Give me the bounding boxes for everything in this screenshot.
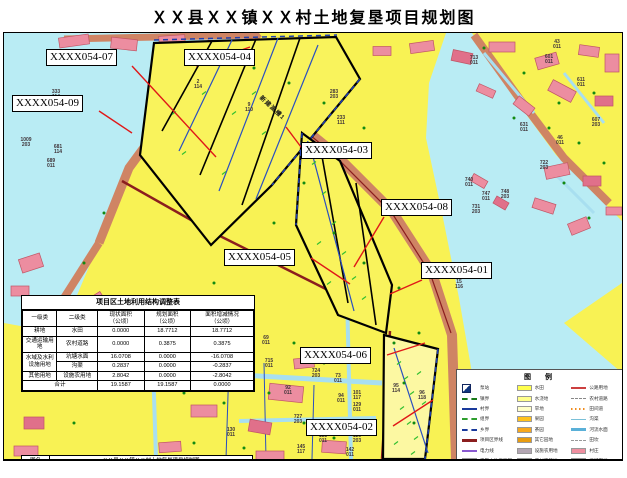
parcel-number-label: 130011 [217, 428, 245, 438]
legend-item: 公路用地 [568, 383, 623, 393]
building [489, 42, 515, 52]
total-label: 合计 [23, 381, 98, 391]
parcel-number-label: 129011 [343, 403, 371, 413]
tree-icon [103, 212, 106, 215]
land-class-1: 交通运输用地 [23, 336, 57, 352]
legend-swatch-dashline-icon [462, 429, 477, 431]
tree-icon [183, 392, 186, 395]
area-change: 18.7712 [191, 327, 254, 337]
legend-item-label: 采矿用地 [589, 458, 607, 461]
parcel-number-label: 740011 [455, 178, 483, 188]
legend-column: 泵站镇界村界组界乡界项目区界线电力线平整土地工程区新增耕地项目区范围其他 [459, 383, 514, 461]
legend-item-label: 镇界 [480, 396, 489, 402]
legend: 图 例 泵站镇界村界组界乡界项目区界线电力线平整土地工程区新增耕地项目区范围其他… [456, 369, 623, 461]
legend-swatch-rect-icon [517, 458, 532, 461]
legend-item-label: 农村宅基地 [535, 458, 558, 461]
legend-swatch-line-icon [571, 419, 586, 420]
legend-item-label: 设施农用地 [535, 448, 558, 454]
parcel-number-label: 283203 [320, 90, 348, 100]
current-area: 0.0000 [97, 327, 144, 337]
parcel-number-label: 731203 [462, 205, 490, 215]
building [595, 96, 613, 106]
planned-area: 0.0000 [144, 362, 191, 372]
parcel-number-label: 73011 [324, 374, 352, 384]
parcel-number-label: 145117 [287, 445, 315, 455]
legend-item: 茶园 [514, 425, 569, 435]
legend-swatch-rect-icon [462, 458, 477, 461]
legend-item-label: 其它园地 [535, 437, 553, 443]
legend-item-label: 田间道 [589, 406, 603, 412]
tree-icon [523, 72, 526, 75]
legend-item: 村庄 [568, 445, 623, 455]
total-planned: 19.1587 [144, 381, 191, 391]
legend-swatch-line-icon [462, 450, 477, 452]
legend-item-label: 电力线 [480, 448, 494, 454]
legend-item: 水浇地 [514, 393, 569, 403]
legend-item-label: 组界 [480, 416, 489, 422]
adjustment-table-title: 项目区土地利用结构调整表 [22, 296, 254, 310]
parcel-number-label: 101117 [343, 391, 371, 401]
parcel-number-label: 233111 [327, 116, 355, 126]
legend-item-label: 水浇地 [535, 396, 549, 402]
tree-icon [223, 402, 226, 405]
legend-swatch-dashline-icon [462, 418, 477, 420]
adjustment-table-grid: 一级类二级类现状面积（公顷）规划面积（公顷）面积增减情况（公顷）耕地水田0.00… [22, 310, 254, 391]
parcel-number-label: 46011 [546, 136, 574, 146]
legend-swatch-line-icon [571, 428, 586, 431]
legend-item: 田坎 [568, 435, 623, 445]
legend-item: 水田 [514, 383, 569, 393]
tree-icon [578, 142, 581, 145]
area-change: 0.3875 [191, 336, 254, 352]
legend-item-label: 泵站 [480, 385, 489, 391]
legend-item: 设施农用地 [514, 445, 569, 455]
parcel-number-label: 713011 [460, 56, 488, 66]
total-change: 0.0000 [191, 381, 254, 391]
tree-icon [268, 392, 271, 395]
legend-swatch-dotline-icon [571, 408, 586, 410]
legend-item: 田间道 [568, 404, 623, 414]
info-name-value: ＸＸ县ＸＸ镇ＸＸ村土地复垦项目规划图 [50, 456, 253, 462]
legend-swatch-rect-icon [517, 427, 532, 433]
legend-item: 村界 [459, 404, 514, 414]
building [583, 176, 601, 186]
legend-item-label: 平整土地工程区 [480, 458, 512, 461]
current-area: 16.0708 [97, 352, 144, 362]
legend-item-label: 沟渠 [589, 416, 598, 422]
area-change: -2.8042 [191, 371, 254, 381]
page-title: ＸＸ县ＸＸ镇ＸＸ村土地复垦项目规划图 [0, 4, 627, 28]
legend-item-label: 田坎 [589, 437, 598, 443]
tree-icon [548, 127, 551, 130]
legend-item-label: 村界 [480, 406, 489, 412]
tree-icon [363, 262, 366, 265]
building [606, 207, 622, 215]
adjustment-table-header: 规划面积（公顷） [144, 311, 191, 327]
tree-icon [603, 162, 606, 165]
land-class-2: 沟渠 [57, 362, 98, 372]
legend-swatch-line-icon [571, 387, 586, 389]
tree-icon [253, 67, 256, 70]
tree-icon [333, 232, 336, 235]
land-class-2: 水田 [57, 327, 98, 337]
map-callout-label: XXXX054-01 [421, 262, 492, 279]
parcel-number-label: 96118 [408, 391, 436, 401]
parcel-number-label: 92011 [274, 386, 302, 396]
tree-icon [413, 422, 416, 425]
planned-area: 0.3875 [144, 336, 191, 352]
planned-area: 0.0000 [144, 371, 191, 381]
legend-item: 镇界 [459, 393, 514, 403]
map-callout-label: XXXX054-03 [301, 142, 372, 159]
adjustment-table-header: 一级类 [23, 311, 57, 327]
land-class-2: 农村道路 [57, 336, 98, 352]
legend-swatch-rect-icon [571, 448, 586, 454]
legend-item: 乡界 [459, 425, 514, 435]
parcel-number-label: 681114 [44, 145, 72, 155]
tree-icon [83, 262, 86, 265]
legend-item-label: 果园 [535, 416, 544, 422]
legend-column: 公路用地农村道路田间道沟渠河流水面田坎村庄采矿用地风景名胜及特殊用地 [568, 383, 623, 461]
legend-item-label: 项目区界线 [480, 437, 503, 443]
map-callout-label: XXXX054-08 [381, 199, 452, 216]
tree-icon [273, 222, 276, 225]
legend-item-label: 乡界 [480, 427, 489, 433]
legend-swatch-dashline-icon [571, 440, 586, 441]
parcel-number-label: 722203 [530, 161, 558, 171]
adjustment-table: 项目区土地利用结构调整表 一级类二级类现状面积（公顷）规划面积（公顷）面积增减情… [21, 295, 255, 392]
building [373, 47, 391, 56]
adjustment-table-header: 现状面积（公顷） [97, 311, 144, 327]
land-class-1: 耕地 [23, 327, 57, 337]
legend-item-label: 公路用地 [589, 385, 607, 391]
land-class-2: 坑塘水面 [57, 352, 98, 362]
tree-icon [213, 282, 216, 285]
legend-item: 河流水面 [568, 425, 623, 435]
tree-icon [293, 342, 296, 345]
legend-swatch-dashline-icon [571, 398, 586, 399]
planned-area: 18.7712 [144, 327, 191, 337]
tree-icon [563, 182, 566, 185]
legend-swatch-rect-icon [517, 416, 532, 422]
legend-swatch-rect-icon [517, 396, 532, 402]
parcel-number-label: 2114 [184, 80, 212, 90]
building [24, 417, 44, 429]
info-name-label: 图名 [22, 456, 50, 462]
map-callout-label: XXXX054-05 [224, 249, 295, 266]
legend-item: 农村道路 [568, 393, 623, 403]
current-area: 0.0000 [97, 336, 144, 352]
parcel-number-label: 43011 [543, 40, 571, 50]
adjustment-table-header: 面积增减情况（公顷） [191, 311, 254, 327]
map-callout-label: XXXX054-02 [306, 419, 377, 436]
legend-item-label: 农村道路 [589, 396, 607, 402]
current-area: 2.8042 [97, 371, 144, 381]
legend-swatch-line-icon [462, 439, 477, 442]
tree-icon [193, 442, 196, 445]
legend-swatch-rect-icon [571, 458, 586, 461]
info-table-grid: 图名ＸＸ县ＸＸ镇ＸＸ村土地复垦项目规划图单位江苏省××地理信息测绘股份有限公司制… [21, 455, 253, 461]
tree-icon [363, 127, 366, 130]
legend-item: 泵站 [459, 383, 514, 393]
map: 新建渡槽1 XXXX054-07XXXX054-04XXXX054-09XXXX… [3, 32, 623, 461]
land-class-1: 其他用地 [23, 371, 57, 381]
legend-item-label: 村庄 [589, 448, 598, 454]
tree-icon [513, 117, 516, 120]
legend-item-label: 河流水面 [589, 427, 607, 433]
legend-item: 项目区界线 [459, 435, 514, 445]
map-callout-label: XXXX054-06 [300, 347, 371, 364]
legend-item: 果园 [514, 414, 569, 424]
parcel-number-label: 607203 [582, 118, 610, 128]
tree-icon [418, 332, 421, 335]
area-change: -0.2837 [191, 362, 254, 372]
parcel-number-label: 69011 [252, 336, 280, 346]
area-change: -16.0708 [191, 352, 254, 362]
tree-icon [588, 217, 591, 220]
map-callout-label: XXXX054-09 [12, 95, 83, 112]
building [159, 441, 182, 453]
tree-icon [73, 422, 76, 425]
legend-item: 旱地 [514, 404, 569, 414]
legend-swatch-rect-icon [517, 437, 532, 443]
building [256, 451, 284, 459]
legend-swatch-rect-icon [517, 406, 532, 412]
map-callout-label: XXXX054-07 [46, 49, 117, 66]
parcel-number-label: 715011 [255, 359, 283, 369]
building [605, 54, 619, 72]
parcel-number-label: 601011 [535, 55, 563, 65]
legend-swatch-line-icon [462, 408, 477, 410]
tree-icon [303, 182, 306, 185]
legend-item-label: 旱地 [535, 406, 544, 412]
adjustment-table-header: 二级类 [57, 311, 98, 327]
legend-swatch-pump-icon [462, 384, 471, 393]
tree-icon [323, 102, 326, 105]
legend-item: 其它园地 [514, 435, 569, 445]
tree-icon [593, 92, 596, 95]
parcel-number-label: 9110 [235, 103, 263, 113]
legend-item: 平整土地工程区 [459, 456, 514, 461]
parcel-number-label: 689011 [37, 159, 65, 169]
tree-icon [483, 47, 486, 50]
legend-title: 图 例 [457, 372, 623, 382]
legend-item-label: 水田 [535, 385, 544, 391]
legend-swatch-dashline-icon [462, 398, 477, 400]
legend-item: 组界 [459, 414, 514, 424]
planned-area: 0.0000 [144, 352, 191, 362]
total-current: 19.1587 [97, 381, 144, 391]
building [191, 405, 217, 417]
legend-item: 沟渠 [568, 414, 623, 424]
legend-item: 电力线 [459, 445, 514, 455]
legend-item-label: 茶园 [535, 427, 544, 433]
parcel-number-label: 1009203 [12, 138, 40, 148]
parcel-number-label: 631011 [510, 123, 538, 133]
land-class-1: 水域及水利设施用地 [23, 352, 57, 371]
tree-icon [288, 82, 291, 85]
map-callout-label: XXXX054-04 [184, 49, 255, 66]
legend-swatch-rect-icon [517, 385, 532, 391]
tree-icon [243, 447, 246, 450]
parcel-number-label: 611011 [567, 78, 595, 88]
parcel-number-label: 748203 [491, 190, 519, 200]
current-area: 0.2837 [97, 362, 144, 372]
legend-item: 农村宅基地 [514, 456, 569, 461]
parcel-number-label: 15116 [445, 280, 473, 290]
legend-item: 采矿用地 [568, 456, 623, 461]
info-table: 图名ＸＸ县ＸＸ镇ＸＸ村土地复垦项目规划图单位江苏省××地理信息测绘股份有限公司制… [21, 455, 253, 461]
legend-column: 水田水浇地旱地果园茶园其它园地设施农用地农村宅基地其他建设用地城市建制镇 [514, 383, 569, 461]
land-class-2: 设施农用地 [57, 371, 98, 381]
parcel-number-label: 142011 [336, 448, 364, 458]
legend-swatch-rect-icon [517, 448, 532, 454]
tree-icon [393, 342, 396, 345]
parcel-number-label: 95114 [382, 384, 410, 394]
tree-icon [558, 102, 561, 105]
